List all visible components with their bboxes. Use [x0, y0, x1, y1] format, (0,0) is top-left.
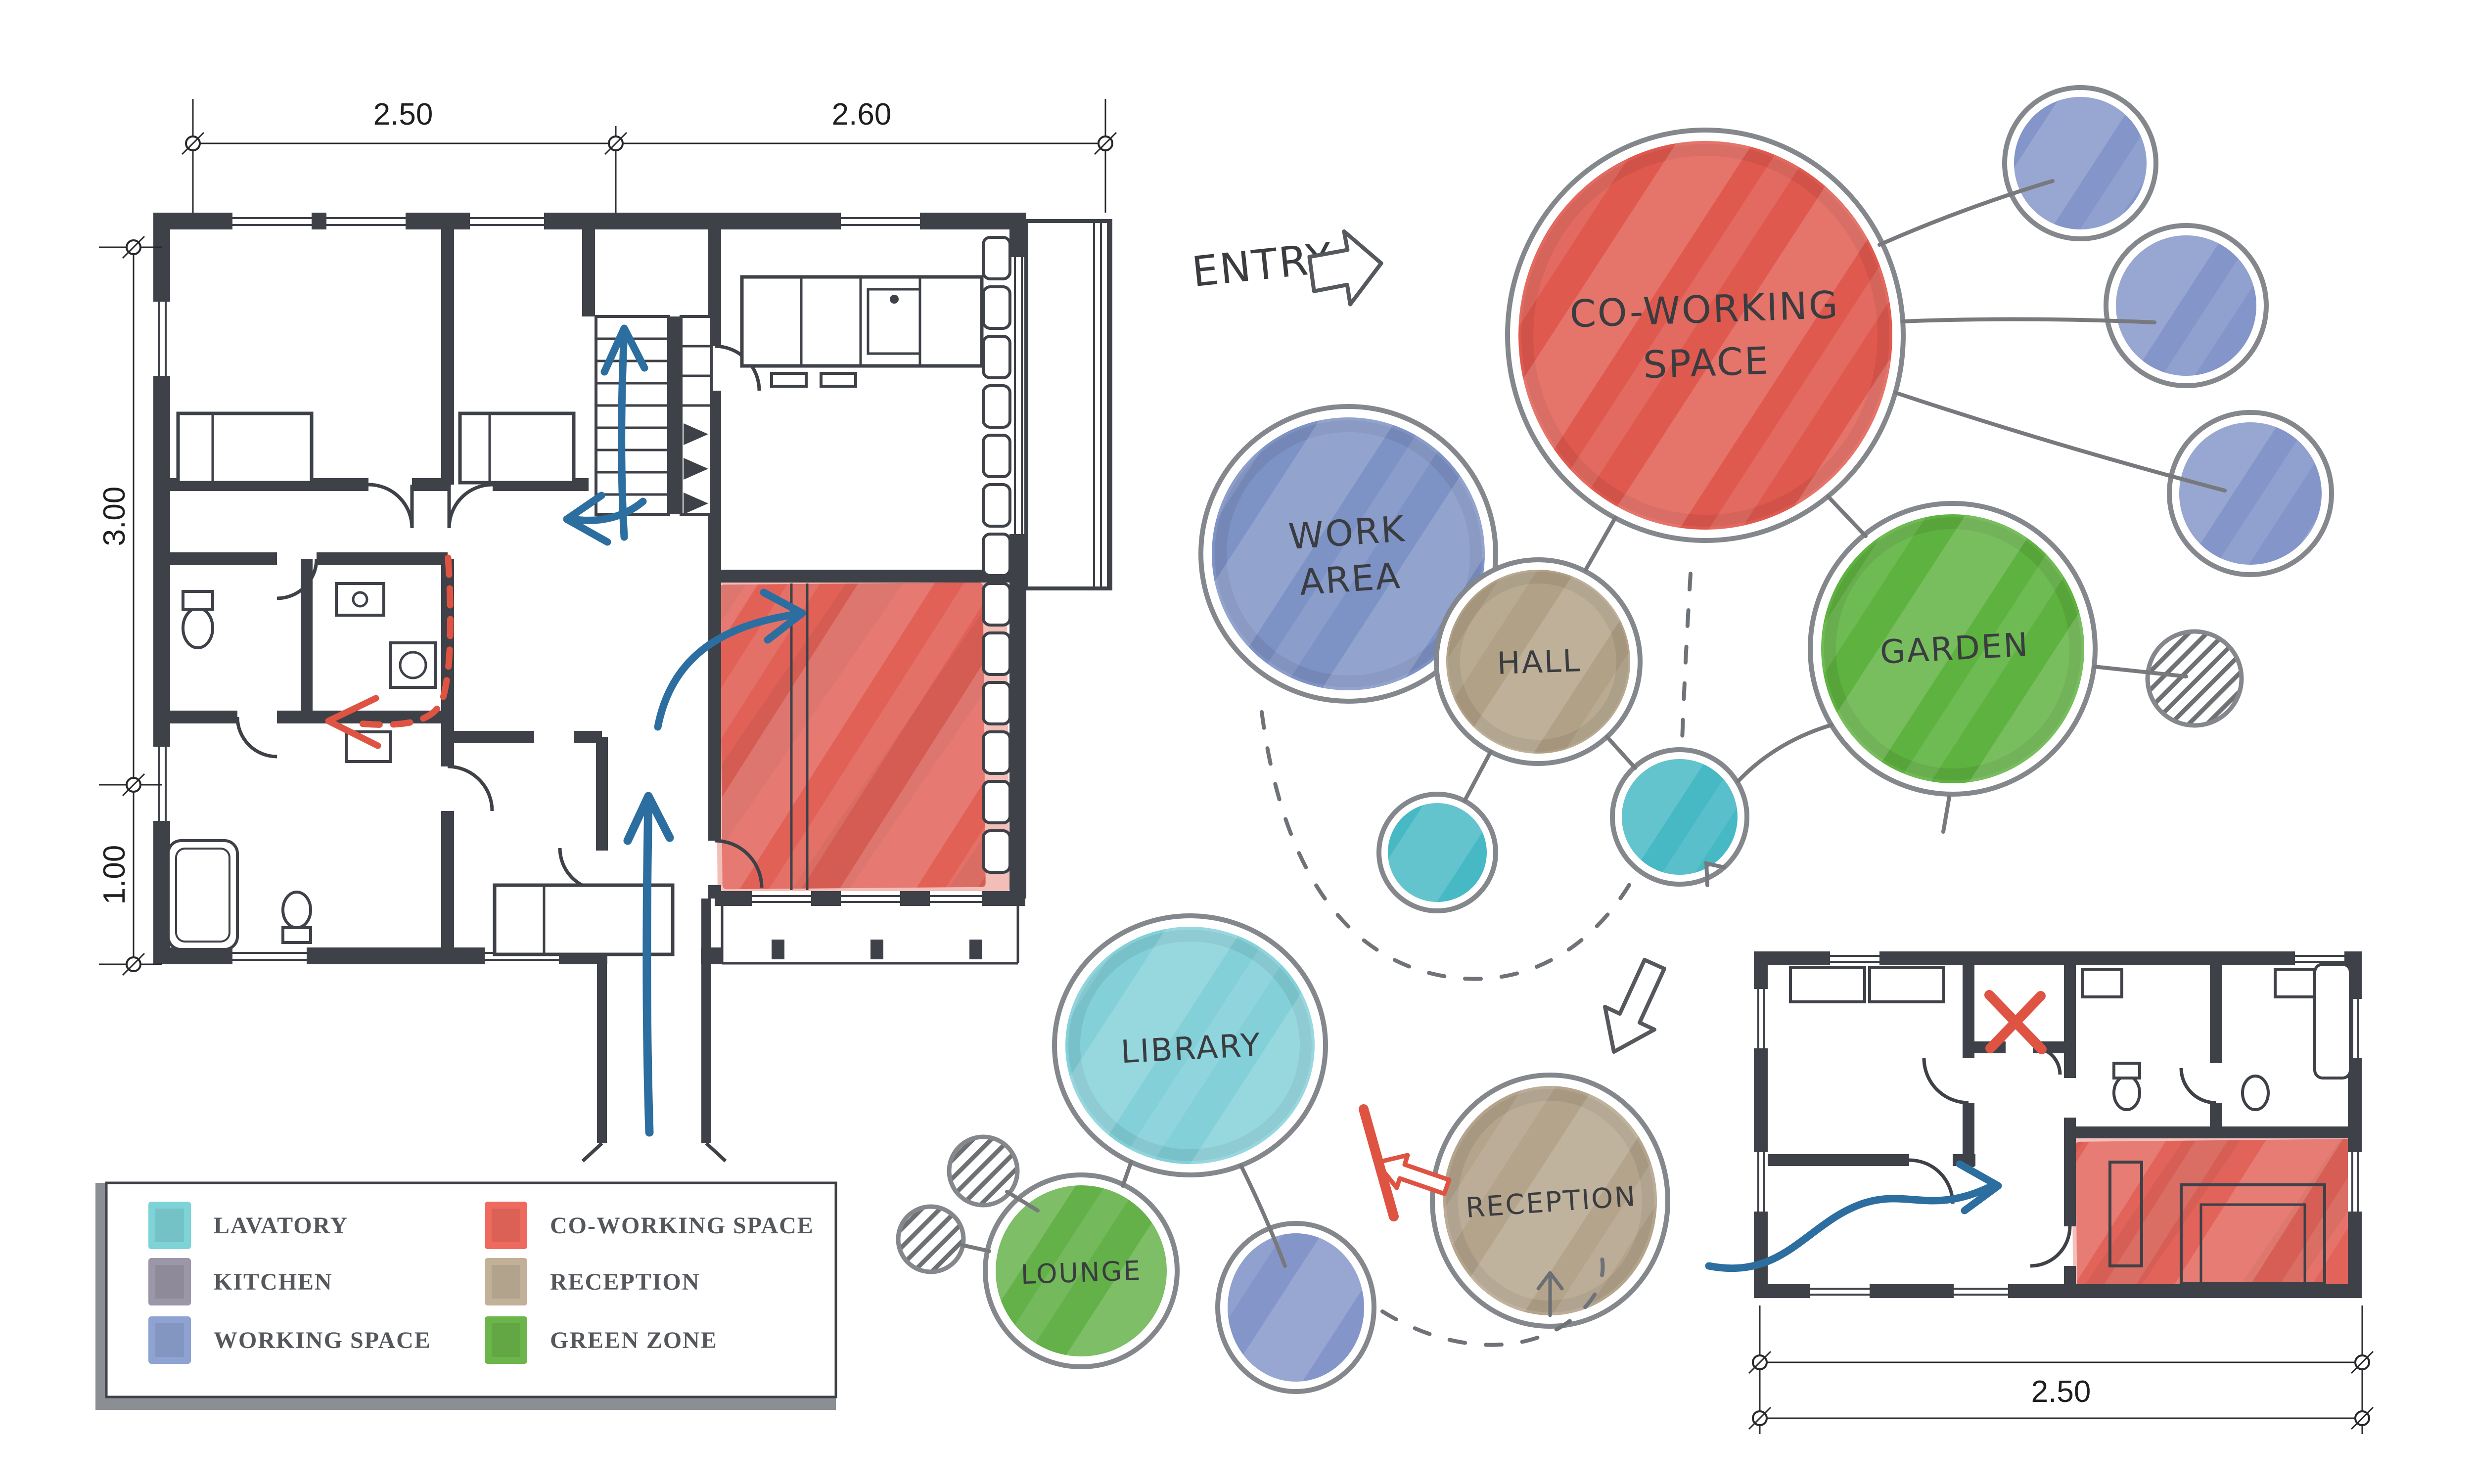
porch [722, 906, 1018, 963]
terrace [1026, 221, 1110, 588]
x-mark-icon [1989, 995, 2042, 1049]
bubble-coworking [1508, 130, 1903, 540]
bubble-working-1 [2005, 88, 2156, 239]
label-coworking-line1: CO-WORKING [1569, 283, 1840, 336]
hatch-circle-garden [2148, 631, 2242, 725]
bubble-lavatory-1 [1379, 794, 1496, 911]
floor-plan-left: 2.50 2.60 3.00 1.00 [97, 97, 1116, 1161]
label-coworking-line2: SPACE [1642, 339, 1770, 387]
dimension-bottom-right: 2.50 [1749, 1305, 2373, 1434]
down-arrow-icon [1605, 960, 1664, 1052]
dim-bottom-span: 2.50 [2031, 1375, 2091, 1409]
hatch-circle-lounge-1 [949, 1137, 1017, 1205]
bubble-working-3 [2169, 412, 2332, 575]
dim-right-span: 2.60 [832, 97, 892, 132]
legend-label: RECEPTION [550, 1269, 700, 1295]
dimension-top: 2.50 2.60 [182, 97, 1116, 213]
dimension-left: 3.00 1.00 [97, 236, 162, 975]
bubble-working-2 [2106, 225, 2266, 386]
label-hall: HALL [1497, 642, 1582, 681]
entry-up-arrow-icon [628, 796, 670, 1132]
hatch-circle-lounge-2 [898, 1207, 963, 1272]
floor-plan-right: 2.50 [1709, 951, 2373, 1434]
bubble-lavatory-2 [1612, 750, 1747, 884]
label-garden: GARDEN [1879, 626, 2030, 672]
label-work-line1: WORK [1287, 508, 1407, 557]
label-work-line2: AREA [1298, 555, 1402, 603]
concept-sketch-canvas: 2.50 2.60 3.00 1.00 [0, 0, 2473, 1484]
dim-side-upper: 3.00 [97, 487, 132, 546]
kitchen-counter [742, 277, 982, 386]
legend-label: LAVATORY [214, 1213, 348, 1239]
label-lounge: LOUNGE [1020, 1255, 1143, 1290]
diagram-svg: 2.50 2.60 3.00 1.00 [0, 0, 2473, 1484]
coworking-room-highlight-right [2071, 1135, 2361, 1292]
legend-label: GREEN ZONE [550, 1327, 718, 1353]
dim-side-lower: 1.00 [97, 845, 132, 905]
label-library: LIBRARY [1120, 1027, 1262, 1071]
legend: LAVATORY KITCHEN WORKING SPACE CO-WORKIN… [95, 1183, 836, 1410]
legend-label: CO-WORKING SPACE [550, 1213, 814, 1239]
legend-label: KITCHEN [214, 1269, 333, 1295]
bubble-working-4 [1218, 1223, 1374, 1392]
legend-label: WORKING SPACE [214, 1327, 431, 1353]
dim-left-span: 2.50 [373, 97, 433, 132]
plan-right-entry-arrow-icon [1709, 1164, 1998, 1268]
